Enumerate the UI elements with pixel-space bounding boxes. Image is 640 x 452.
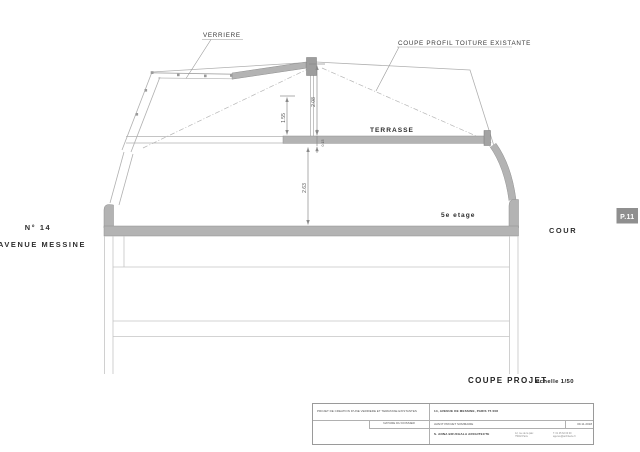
titleblock-address: 14, AVENUE DE MESSINE, PARIS 75 008	[434, 410, 589, 414]
right-wall	[490, 144, 519, 228]
terrace-edge-post	[484, 131, 491, 146]
dim-under-roof: 1.55	[281, 113, 287, 123]
left-wall	[104, 205, 114, 229]
titleblock-dossier-value: AVANT PROJET SOMMAIRE	[434, 423, 554, 427]
label-street-name: AVENUE MESSINE	[0, 240, 86, 249]
titleblock-contact-1: 12, rue de la paix 75002 Paris	[515, 432, 551, 438]
floor-slab	[104, 226, 519, 236]
label-terrasse: TERRASSE	[370, 127, 414, 134]
label-cour: COUR	[549, 226, 577, 235]
ridge-block	[307, 58, 317, 76]
titleblock-contact-2: T. 01 45 62 00 00 agence@architecte.fr	[553, 432, 591, 438]
page-badge: P.11	[617, 208, 639, 224]
caption-scale: échelle 1/50	[536, 379, 574, 385]
title-block: PROJET DE CREATION D'UNE VERRIERE ET TER…	[312, 403, 594, 445]
dim-ceiling-height: 2.63	[302, 183, 308, 193]
lower-structure	[105, 236, 519, 374]
titleblock-divider-main	[429, 404, 430, 444]
titleblock-dossier-label: NATURE DU DOSSIER	[369, 422, 429, 426]
titleblock-project: PROJET DE CREATION D'UNE VERRIERE ET TER…	[317, 410, 427, 414]
callout-verriere: VERRIERE	[203, 32, 241, 39]
titleblock-line-l2	[369, 428, 429, 429]
dimensions	[280, 64, 325, 225]
titleblock-line-r2	[429, 428, 593, 429]
label-street-number: N° 14	[25, 223, 52, 232]
callout-roof-profile: COUPE PROFIL TOITURE EXISTANTE	[398, 40, 531, 47]
page-badge-label: P.11	[620, 214, 634, 221]
titleblock-line-r1	[429, 420, 593, 421]
attic-floor-lines	[126, 137, 283, 144]
dim-ridge-height: 2.08	[311, 97, 317, 107]
titleblock-architect: S. ANNA BOUCHALA ARCHITECTE	[434, 433, 514, 437]
dim-slab-thickness: 0.15	[321, 140, 325, 147]
label-floor: 5e etage	[441, 212, 475, 219]
verriere-glazing	[136, 58, 317, 116]
titleblock-date: 09.11.2018	[568, 423, 592, 427]
callout-leaders	[186, 40, 512, 92]
section-drawing: 2.08 1.55 0.15 2.63 VERRIERE COUPE PROFI…	[0, 0, 640, 452]
drawing-sheet: 2.08 1.55 0.15 2.63 VERRIERE COUPE PROFI…	[0, 0, 640, 452]
titleblock-divider-date	[565, 420, 566, 428]
